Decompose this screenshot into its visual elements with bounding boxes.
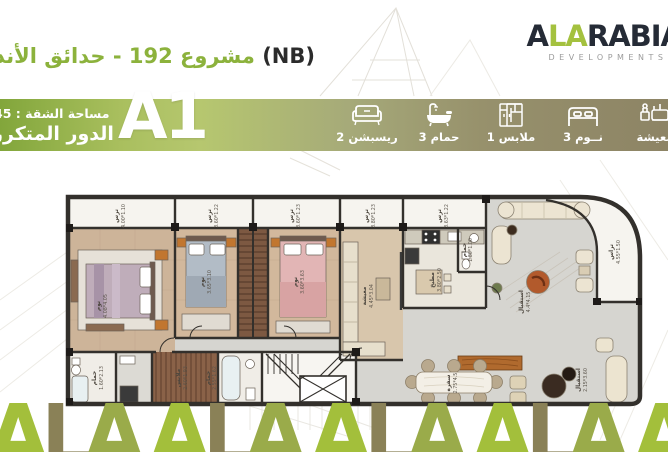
brand-wordmark: ALARABIA [526, 22, 668, 51]
svg-text:نوم: نوم [200, 277, 206, 287]
ala-monogram: ALA [149, 399, 298, 452]
feature-dressing: ملابس 1 [482, 102, 540, 144]
feature-bedrooms-label: نــوم 3 [563, 130, 603, 144]
svg-text:ملابس: ملابس [176, 368, 182, 387]
floor-label: الدور المتكرر [0, 123, 116, 145]
svg-text:سفرة: سفرة [446, 374, 452, 391]
svg-text:استقبال: استقبال [519, 290, 525, 314]
svg-text:ترس: ترس [289, 209, 295, 223]
feature-reception: ريسبشن 2 [338, 102, 396, 144]
floor-plan-drawing: ترس 4.00*1.10 ترس 3.60*1.22 ترس 3.60*1.2… [60, 190, 648, 422]
svg-text:4.08*4.05: 4.08*4.05 [103, 294, 109, 318]
ala-monogram: ALA [311, 399, 460, 452]
svg-text:نوم: نوم [293, 277, 299, 287]
feature-bathrooms: حمام 3 [410, 102, 468, 144]
ala-monogram: ALA [634, 399, 668, 452]
svg-text:3.65*3.10: 3.65*3.10 [207, 270, 213, 294]
sofa-icon [350, 102, 384, 128]
feature-living-label: معيشة [637, 130, 668, 144]
brand-logo: ALARABIA DEVELOPMENTS [526, 22, 668, 62]
floor-plan: ترس 4.00*1.10 ترس 3.60*1.22 ترس 3.60*1.2… [60, 190, 648, 426]
feature-bathrooms-label: حمام 3 [419, 130, 460, 144]
furniture-sideboard [458, 356, 522, 370]
svg-text:3.60*1.23: 3.60*1.23 [296, 204, 302, 228]
svg-text:3.80*1.23: 3.80*1.23 [371, 204, 377, 228]
svg-text:2.60*1.93: 2.60*1.93 [183, 366, 189, 390]
project-name: مشروع 192 - حدائق الأندلس [0, 44, 255, 68]
wardrobe-strip [238, 228, 268, 338]
feature-list: معيشة نــوم 3 ملابس 1 [338, 102, 668, 150]
svg-text:1.60*2.13: 1.60*2.13 [99, 366, 105, 390]
svg-text:حمام: حمام [462, 243, 468, 258]
ala-monogram: ALA [0, 399, 137, 452]
svg-text:نوم: نوم [96, 301, 102, 311]
svg-text:4.4*4.15: 4.4*4.15 [526, 292, 532, 313]
svg-text:3.60*1.22: 3.60*1.22 [214, 204, 220, 228]
svg-text:ترس: ترس [207, 209, 213, 223]
project-code: (NB) [262, 44, 315, 68]
feature-dressing-label: ملابس 1 [487, 130, 535, 144]
bed-icon [566, 102, 600, 128]
svg-text:حمام: حمام [206, 371, 212, 386]
feature-bedrooms: نــوم 3 [554, 102, 612, 144]
svg-text:4.45*3.04: 4.45*3.04 [369, 284, 375, 308]
unit-banner: مساحة الشقة : 45 الدور المتكرر A1 معيشة … [0, 99, 668, 151]
terrace-band [68, 197, 486, 228]
svg-text:3.60*3.63: 3.60*3.63 [300, 270, 306, 294]
apartment-area-label: مساحة الشقة : 45 [0, 106, 116, 121]
bathtub-icon [422, 102, 456, 128]
brochure-page: { "brand": { "logo_part1": "A", "logo_pa… [0, 0, 668, 452]
svg-text:مطبخ: مطبخ [430, 272, 436, 288]
svg-text:حمام: حمام [92, 371, 98, 386]
wardrobe-icon [494, 102, 528, 128]
svg-text:3.80*2.50: 3.80*2.50 [437, 268, 443, 292]
svg-text:4.55*1.50: 4.55*1.50 [616, 240, 622, 264]
svg-text:3.63*1.22: 3.63*1.22 [444, 204, 450, 228]
svg-text:4.00*1.10: 4.00*1.10 [121, 204, 127, 228]
svg-text:2.55*1.62: 2.55*1.62 [212, 366, 218, 390]
svg-text:ترس: ترس [437, 209, 443, 223]
unit-code: A1 [118, 85, 206, 149]
svg-text:ترس: ترس [364, 209, 370, 223]
svg-text:تراس: تراس [609, 244, 615, 260]
feature-living: معيشة [626, 102, 668, 144]
svg-text:1.80*1.00: 1.80*1.00 [468, 238, 474, 262]
feature-reception-label: ريسبشن 2 [336, 130, 397, 144]
footer-logo-pattern: ALAALAALAALAALAALAALA [0, 399, 668, 452]
project-title: (NB) مشروع 192 - حدائق الأندلس [0, 44, 315, 68]
svg-text:2.15*3.60: 2.15*3.60 [583, 368, 589, 392]
furniture-bedroom-master [71, 250, 168, 331]
svg-text:ترس: ترس [114, 209, 120, 223]
svg-text:استقبال: استقبال [576, 368, 582, 392]
svg-text:2.75*4.5: 2.75*4.5 [453, 373, 459, 394]
brand-tagline: DEVELOPMENTS [526, 53, 668, 62]
ala-monogram: ALA [472, 399, 621, 452]
living-room-icon [638, 102, 668, 128]
svg-text:معيشة: معيشة [362, 286, 368, 305]
